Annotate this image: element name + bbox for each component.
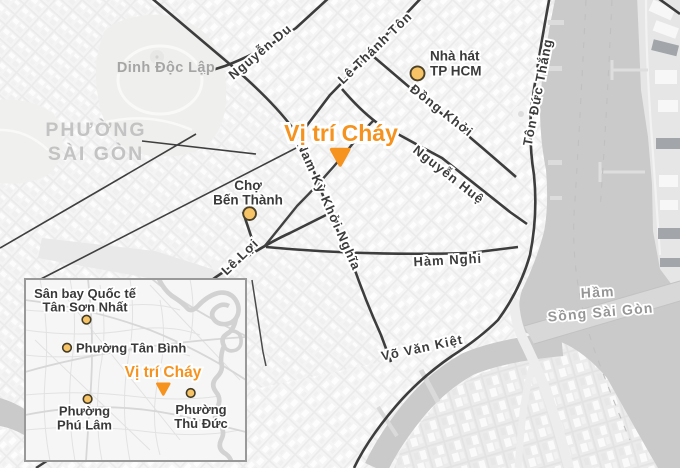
svg-text:Nhà hát: Nhà hát	[430, 49, 480, 64]
svg-text:Phường Tân Bình: Phường Tân Bình	[76, 341, 186, 356]
svg-text:Tân Sơn Nhất: Tân Sơn Nhất	[42, 300, 128, 315]
svg-text:Phường: Phường	[175, 402, 226, 417]
svg-text:TP HCM: TP HCM	[430, 64, 482, 79]
svg-text:Hầm: Hầm	[580, 283, 615, 301]
svg-text:Phường: Phường	[59, 404, 110, 419]
svg-text:Thủ Đức: Thủ Đức	[174, 416, 227, 431]
svg-text:Phú Lâm: Phú Lâm	[57, 418, 112, 433]
svg-text:Dinh Độc Lập: Dinh Độc Lập	[117, 60, 215, 76]
svg-text:Vị trí Cháy: Vị trí Cháy	[125, 364, 202, 381]
svg-text:Vị trí Cháy: Vị trí Cháy	[284, 120, 398, 146]
svg-text:Bến Thành: Bến Thành	[213, 193, 283, 208]
svg-text:Chợ: Chợ	[234, 178, 262, 193]
svg-text:PHƯỜNG: PHƯỜNG	[45, 117, 146, 141]
svg-text:SÀI GÒN: SÀI GÒN	[48, 141, 144, 165]
